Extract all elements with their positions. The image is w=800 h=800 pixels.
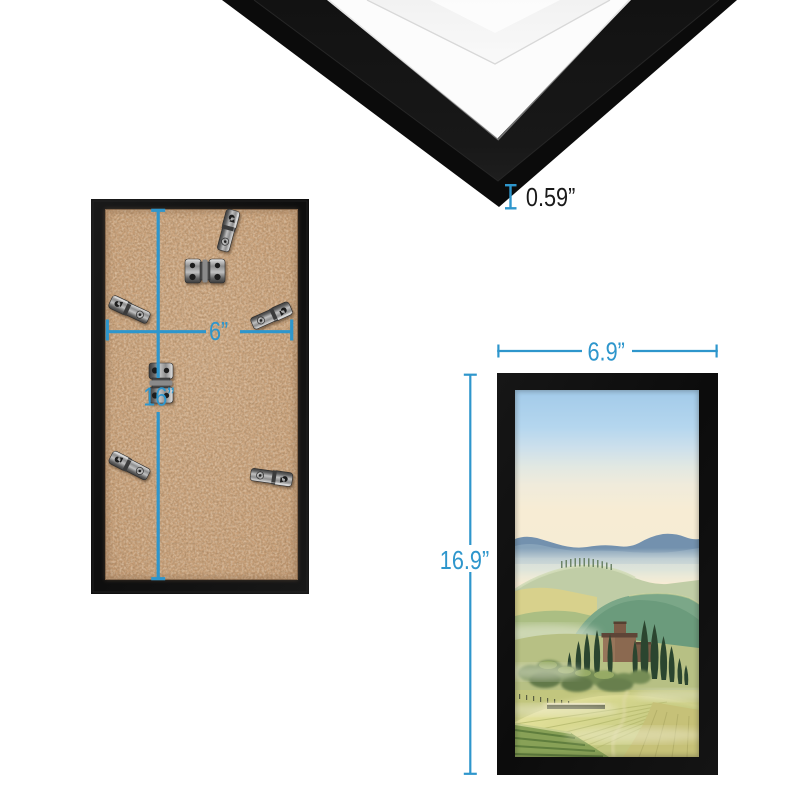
svg-text:6”: 6” — [209, 318, 228, 346]
svg-text:0.59”: 0.59” — [526, 184, 575, 212]
svg-text:16”: 16” — [143, 384, 174, 412]
svg-text:6.9”: 6.9” — [588, 339, 625, 367]
svg-text:16.9”: 16.9” — [440, 547, 489, 575]
